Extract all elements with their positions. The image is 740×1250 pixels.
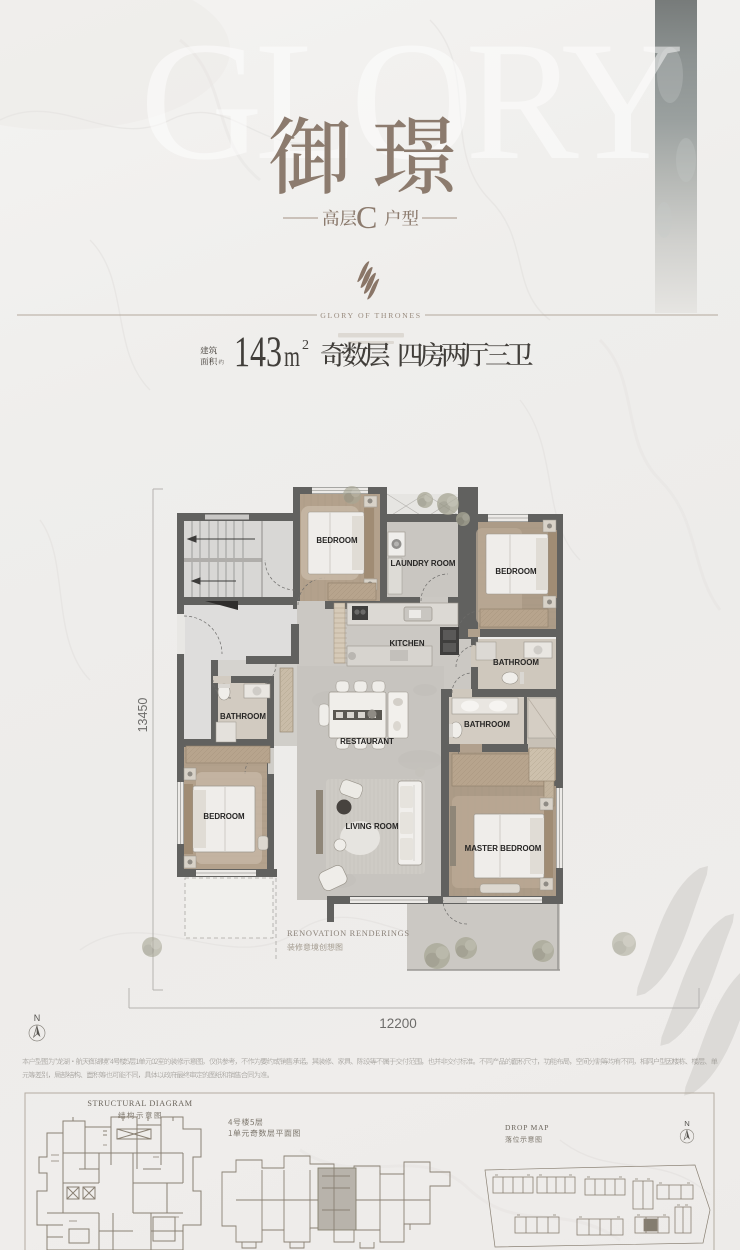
svg-text:13450: 13450 xyxy=(136,698,150,733)
svg-text:N: N xyxy=(34,1013,41,1023)
svg-text:DROP MAP: DROP MAP xyxy=(505,1123,549,1132)
svg-text:RESTAURANT: RESTAURANT xyxy=(340,737,394,746)
svg-text:RENOVATION RENDERINGS: RENOVATION RENDERINGS xyxy=(287,929,410,938)
svg-text:143: 143 xyxy=(234,329,282,376)
svg-text:BATHROOM: BATHROOM xyxy=(220,712,266,721)
svg-text:N: N xyxy=(684,1119,690,1128)
svg-text:KITCHEN: KITCHEN xyxy=(389,639,424,648)
svg-text:BATHROOM: BATHROOM xyxy=(493,658,539,667)
svg-text:BATHROOM: BATHROOM xyxy=(464,720,510,729)
svg-text:LAUNDRY ROOM: LAUNDRY ROOM xyxy=(391,559,456,568)
svg-text:BEDROOM: BEDROOM xyxy=(203,812,245,821)
svg-text:m: m xyxy=(284,340,300,373)
svg-text:LIVING ROOM: LIVING ROOM xyxy=(345,822,398,831)
svg-text:12200: 12200 xyxy=(379,1016,417,1031)
svg-text:2: 2 xyxy=(302,338,309,353)
svg-text:STRUCTURAL DIAGRAM: STRUCTURAL DIAGRAM xyxy=(87,1099,192,1108)
svg-text:C: C xyxy=(356,199,377,235)
svg-text:MASTER BEDROOM: MASTER BEDROOM xyxy=(465,844,542,853)
svg-text:GLORY OF THRONES: GLORY OF THRONES xyxy=(320,311,421,320)
svg-text:BEDROOM: BEDROOM xyxy=(495,567,537,576)
svg-text:BEDROOM: BEDROOM xyxy=(316,536,358,545)
